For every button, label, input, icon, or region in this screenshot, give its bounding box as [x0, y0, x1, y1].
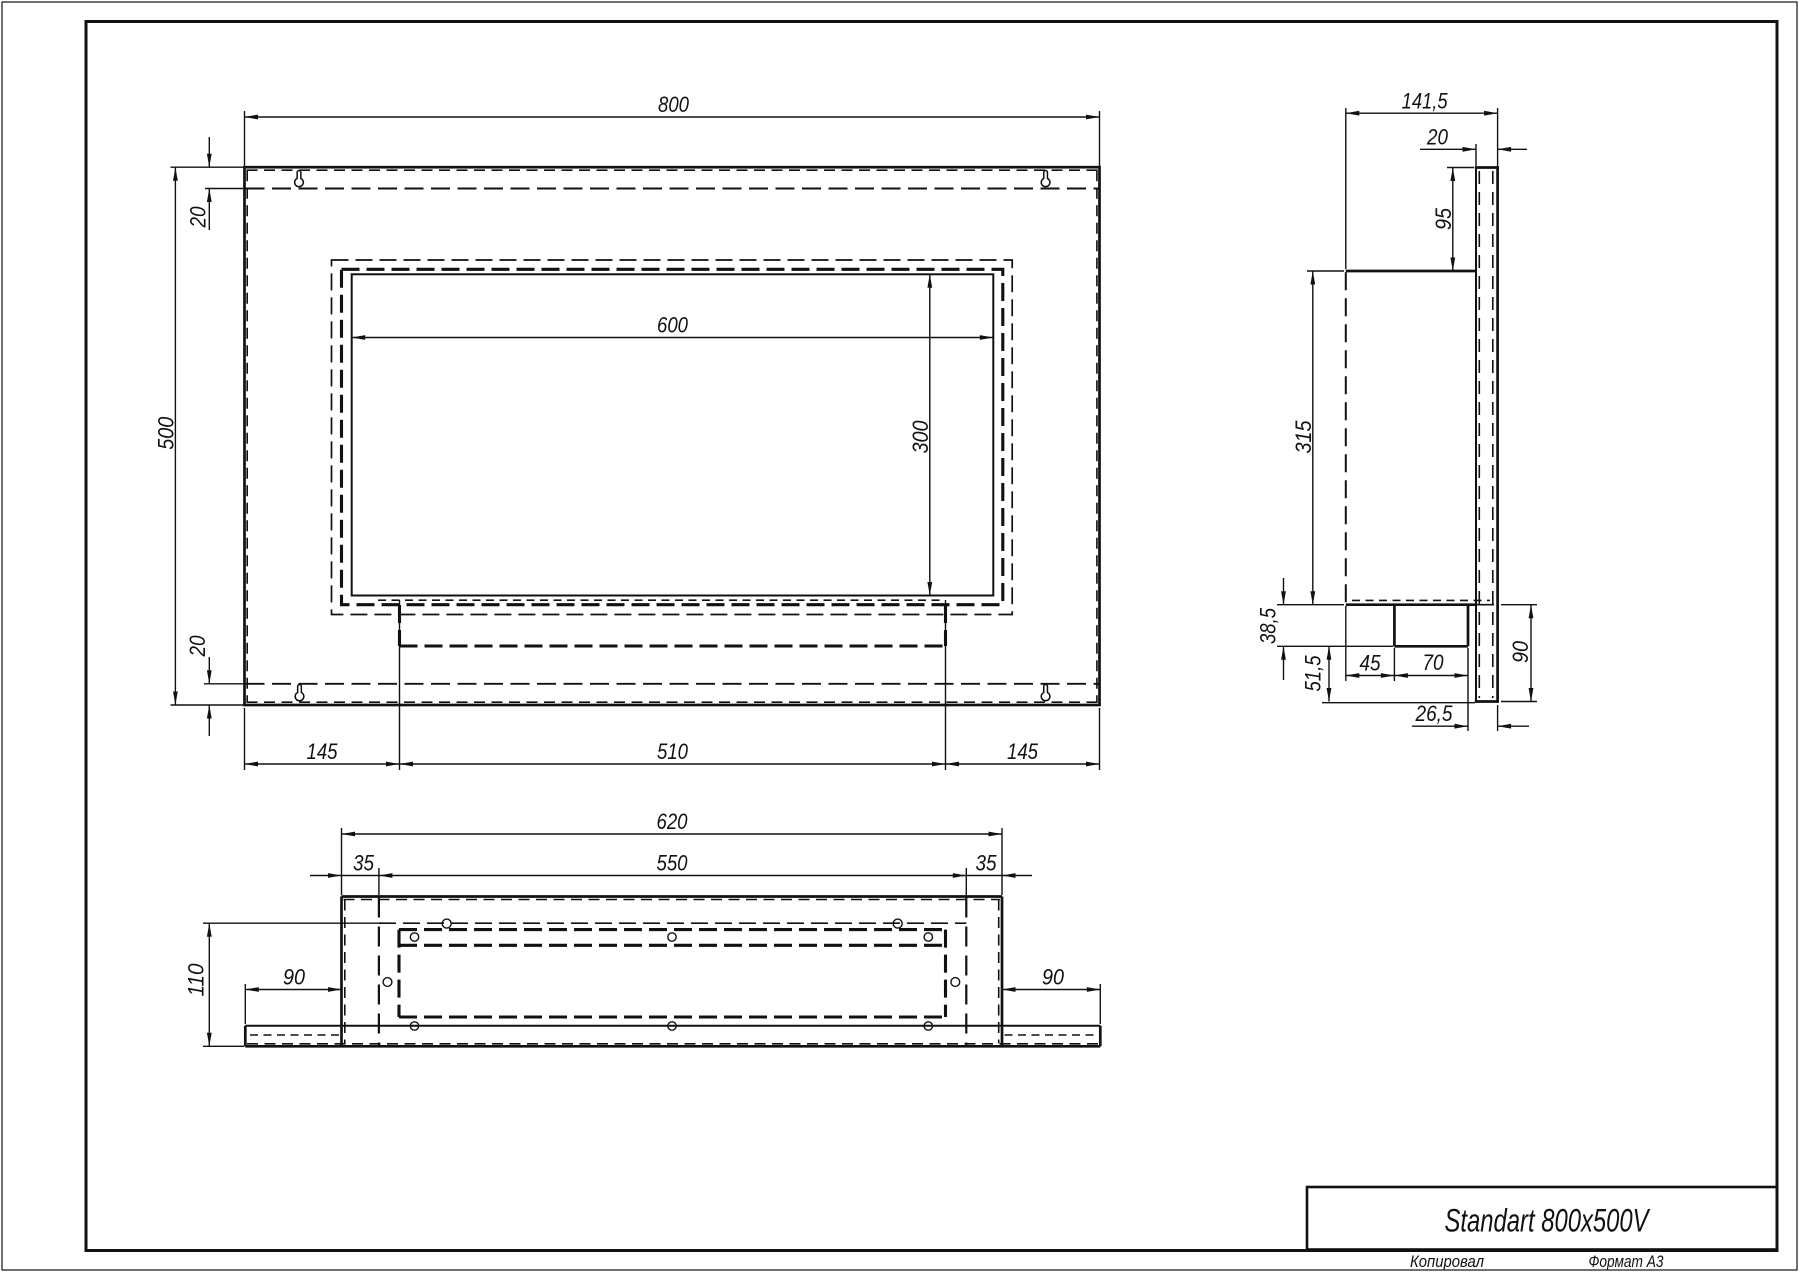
svg-text:550: 550	[657, 851, 688, 876]
svg-text:20: 20	[1426, 125, 1448, 150]
svg-text:600: 600	[657, 313, 688, 338]
svg-text:38,5: 38,5	[1256, 608, 1281, 644]
svg-text:500: 500	[154, 416, 179, 449]
svg-text:26,5: 26,5	[1415, 701, 1453, 726]
svg-text:20: 20	[185, 206, 210, 228]
svg-text:141,5: 141,5	[1402, 88, 1448, 113]
svg-text:Формат А3: Формат А3	[1589, 1253, 1665, 1271]
svg-text:20: 20	[185, 635, 210, 657]
svg-text:90: 90	[1508, 641, 1533, 663]
svg-text:620: 620	[657, 809, 688, 834]
svg-text:300: 300	[908, 420, 933, 453]
svg-text:90: 90	[283, 965, 305, 990]
svg-text:510: 510	[657, 739, 688, 764]
svg-text:35: 35	[976, 851, 997, 876]
svg-text:Копировал: Копировал	[1410, 1253, 1484, 1271]
svg-text:70: 70	[1423, 650, 1444, 675]
svg-text:45: 45	[1360, 651, 1381, 676]
svg-text:95: 95	[1431, 208, 1456, 230]
svg-text:90: 90	[1042, 965, 1064, 990]
svg-text:51,5: 51,5	[1301, 655, 1326, 691]
svg-text:315: 315	[1291, 420, 1316, 453]
svg-text:145: 145	[1007, 739, 1038, 764]
svg-text:Standart 800x500V: Standart 800x500V	[1445, 1203, 1651, 1239]
svg-text:800: 800	[658, 92, 689, 117]
svg-text:110: 110	[184, 963, 209, 996]
svg-text:145: 145	[307, 739, 338, 764]
svg-text:35: 35	[353, 851, 374, 876]
